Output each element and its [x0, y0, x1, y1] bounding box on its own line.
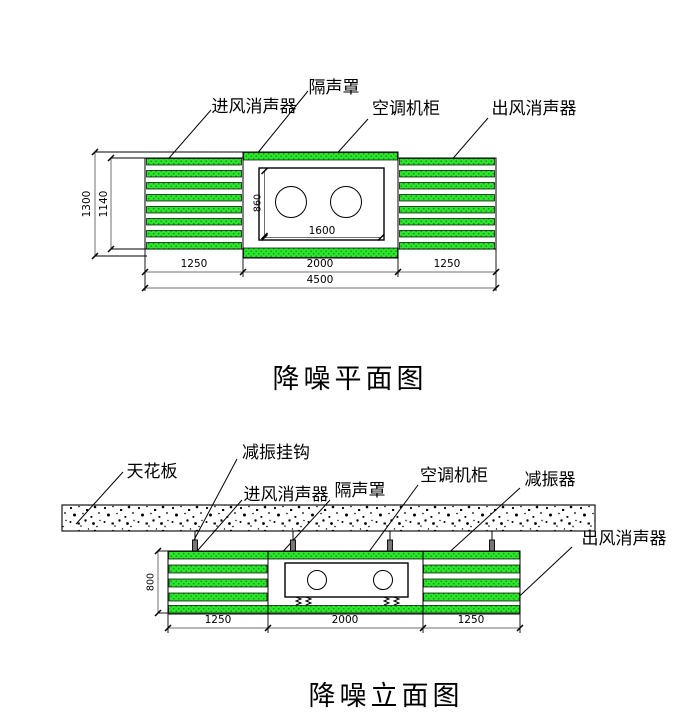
- plan-label-inlet-silencer: 进风消声器: [212, 97, 297, 116]
- elev-dim-1250-right: 1250: [458, 614, 485, 626]
- drawing-canvas: 进风消声器 隔声罩 空调机柜 出风消声器: [0, 0, 686, 721]
- baffle-stripe: [147, 243, 242, 250]
- baffle-stripe: [400, 207, 495, 214]
- baffle-stripe: [147, 183, 242, 190]
- hanger-bolt: [291, 540, 296, 551]
- plan-dim-1250-left: 1250: [181, 258, 208, 270]
- noise-reduction-drawing: 进风消声器 隔声罩 空调机柜 出风消声器: [0, 0, 686, 721]
- elevation-title: 降噪立面图: [309, 681, 464, 711]
- baffle-stripe: [169, 593, 267, 601]
- elev-right-silencer: [424, 565, 520, 601]
- baffle-stripe: [424, 593, 520, 601]
- plan-label-cabinet: 空调机柜: [372, 99, 440, 118]
- plan-enclosure-top-wall: [244, 153, 398, 161]
- svg-text:1600: 1600: [309, 225, 336, 237]
- elev-label-cabinet: 空调机柜: [420, 466, 488, 485]
- elev-dim-2000: 2000: [332, 614, 359, 626]
- elev-dim-800: 800: [146, 548, 169, 616]
- svg-text:1300: 1300: [81, 191, 93, 218]
- baffle-stripe: [400, 231, 495, 238]
- elev-label-inlet-silencer: 进风消声器: [244, 485, 329, 504]
- elev-dim-1250-left: 1250: [205, 614, 232, 626]
- svg-text:1140: 1140: [98, 191, 110, 218]
- svg-text:800: 800: [146, 573, 157, 591]
- baffle-stripe: [424, 565, 520, 573]
- plan-label-enclosure: 隔声罩: [309, 78, 360, 97]
- baffle-stripe: [147, 195, 242, 202]
- baffle-stripe: [169, 579, 267, 587]
- elev-label-hanger: 减振挂钩: [242, 443, 310, 462]
- elev-label-outlet-silencer: 出风消声器: [582, 529, 667, 548]
- baffle-stripe: [400, 171, 495, 178]
- plan-enclosure-bottom-wall: [244, 248, 398, 258]
- plan-title: 降噪平面图: [273, 364, 428, 394]
- plan-dim-2000: 2000: [307, 258, 334, 270]
- elev-dim-chain: 1250 2000 1250: [165, 614, 523, 633]
- baffle-stripe: [424, 579, 520, 587]
- elev-cabinet-box: [285, 563, 408, 597]
- baffle-stripe: [147, 159, 242, 166]
- baffle-stripe: [400, 243, 495, 250]
- hanger-bolt: [193, 540, 198, 551]
- svg-text:860: 860: [253, 194, 264, 212]
- hanger-bolts: [193, 531, 495, 551]
- plan-view: 进风消声器 隔声罩 空调机柜 出风消声器: [81, 78, 577, 394]
- elevation-view: 天花板 减振挂钩 进风消声器 隔声罩 空调机柜 减振器 出风消声器: [62, 443, 667, 711]
- plan-dim-1250-right: 1250: [434, 258, 461, 270]
- plan-left-silencer: [145, 158, 243, 249]
- ceiling-slab: [62, 505, 595, 531]
- baffle-stripe: [147, 219, 242, 226]
- hanger-bolt: [388, 540, 393, 551]
- elev-top-wall: [169, 552, 520, 560]
- hanger-bolt: [490, 540, 495, 551]
- plan-label-outlet-silencer: 出风消声器: [492, 99, 577, 118]
- baffle-stripe: [400, 159, 495, 166]
- baffle-stripe: [400, 183, 495, 190]
- plan-dim-1140: 1140: [98, 155, 145, 252]
- baffle-stripe: [147, 231, 242, 238]
- elev-label-ceiling: 天花板: [127, 462, 178, 481]
- baffle-stripe: [400, 195, 495, 202]
- elev-bottom-wall: [169, 606, 520, 614]
- plan-right-silencer: [398, 158, 496, 249]
- baffle-stripe: [169, 565, 267, 573]
- elev-left-silencer: [169, 565, 267, 601]
- elev-label-damper: 减振器: [525, 470, 576, 489]
- baffle-stripe: [147, 207, 242, 214]
- elev-label-enclosure: 隔声罩: [335, 481, 386, 500]
- baffle-stripe: [400, 219, 495, 226]
- plan-dim-4500: 4500: [307, 274, 334, 286]
- baffle-stripe: [147, 171, 242, 178]
